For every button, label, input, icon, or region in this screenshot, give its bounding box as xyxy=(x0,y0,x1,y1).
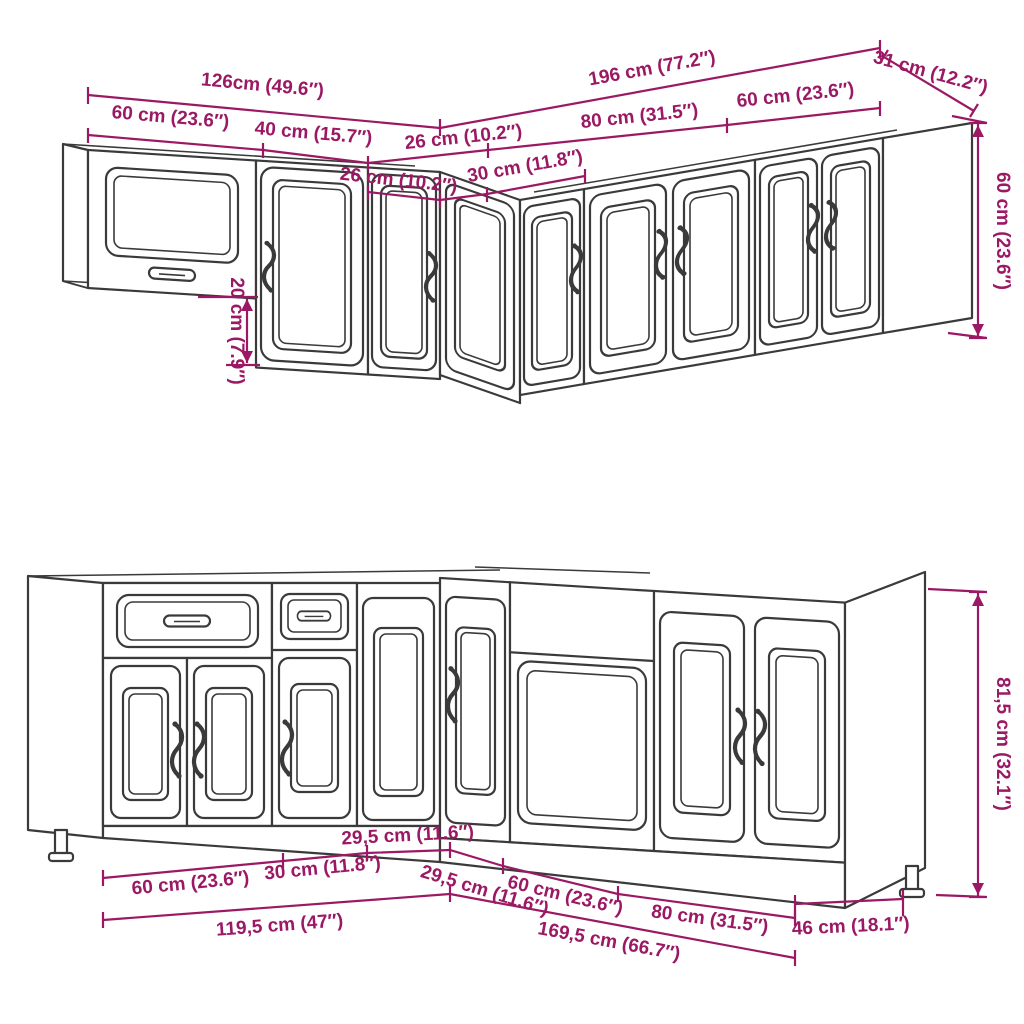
base-corner-door-left xyxy=(357,583,440,826)
wall-corner-cabinet xyxy=(440,172,520,403)
wall-cabinet-60-flip xyxy=(88,150,256,298)
dim-wall-underhang: 20 cm (7.9″) xyxy=(226,277,247,384)
wall-cabinet-60-right xyxy=(755,138,883,355)
base-right-side-panel xyxy=(845,572,925,908)
dim-base-height: 81,5 cm (32.1″) xyxy=(992,677,1013,811)
wall-right-side-panel xyxy=(883,123,972,333)
dim-base-side-depth: 46 cm (18.1″) xyxy=(791,913,910,940)
dim-base-total-left: 119,5 cm (47″) xyxy=(215,910,344,940)
base-sink-cabinet-60 xyxy=(510,582,654,851)
wall-cabinet-80 xyxy=(584,160,755,384)
base-back-top-edge xyxy=(28,570,500,576)
wall-cabinet-40 xyxy=(256,160,368,374)
dim-base-30: 30 cm (11.8″) xyxy=(263,853,381,885)
base-cabinet-run xyxy=(28,567,925,908)
dim-wall-40: 40 cm (15.7″) xyxy=(254,118,373,149)
dim-wall-side-depth: 31 cm (12.2″) xyxy=(871,47,990,99)
kitchen-cabinet-diagram: 126cm (49.6″) 196 cm (77.2″) 31 cm (12.2… xyxy=(0,0,1024,1024)
base-cabinet-30-drawer xyxy=(272,583,357,826)
dim-wall-height: 60 cm (23.6″) xyxy=(992,172,1013,290)
wall-cabinet-30 xyxy=(520,189,584,395)
base-left-side-panel xyxy=(28,576,103,838)
dim-wall-total-right: 196 cm (77.2″) xyxy=(587,47,717,91)
base-cabinet-60-drawer xyxy=(103,583,272,826)
base-cabinet-80 xyxy=(654,591,845,863)
dim-base-total-right: 169,5 cm (66.7″) xyxy=(536,918,682,965)
dim-wall-60-right: 60 cm (23.6″) xyxy=(736,79,855,112)
base-corner-door-right xyxy=(440,578,510,842)
dim-wall-total-left: 126cm (49.6″) xyxy=(200,69,325,101)
dim-base-60-left: 60 cm (23.6″) xyxy=(131,868,250,900)
dim-wall-30: 30 cm (11.8″) xyxy=(466,146,585,187)
dim-wall-80: 80 cm (31.5″) xyxy=(580,100,699,133)
wall-left-side-panel xyxy=(63,144,88,288)
base-sink-back-top-edge xyxy=(475,567,650,573)
